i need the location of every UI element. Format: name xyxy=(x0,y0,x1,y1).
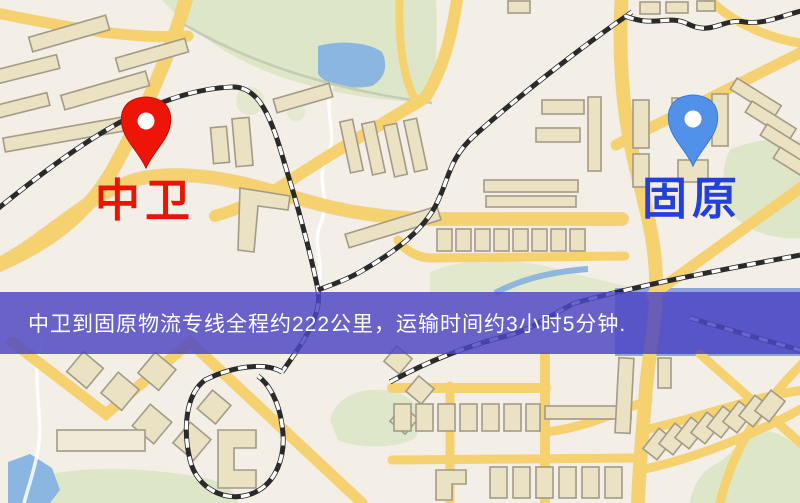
origin-city-label: 中卫 xyxy=(95,178,195,223)
map-graphics xyxy=(0,0,800,503)
lake-top xyxy=(318,43,385,88)
route-info-banner: 中卫到固原物流专线全程约222公里，运输时间约3小时5分钟. xyxy=(0,292,800,354)
route-info-text: 中卫到固原物流专线全程约222公里，运输时间约3小时5分钟. xyxy=(28,308,626,338)
map-canvas[interactable] xyxy=(0,0,800,503)
destination-city-label: 固原 xyxy=(642,176,742,221)
